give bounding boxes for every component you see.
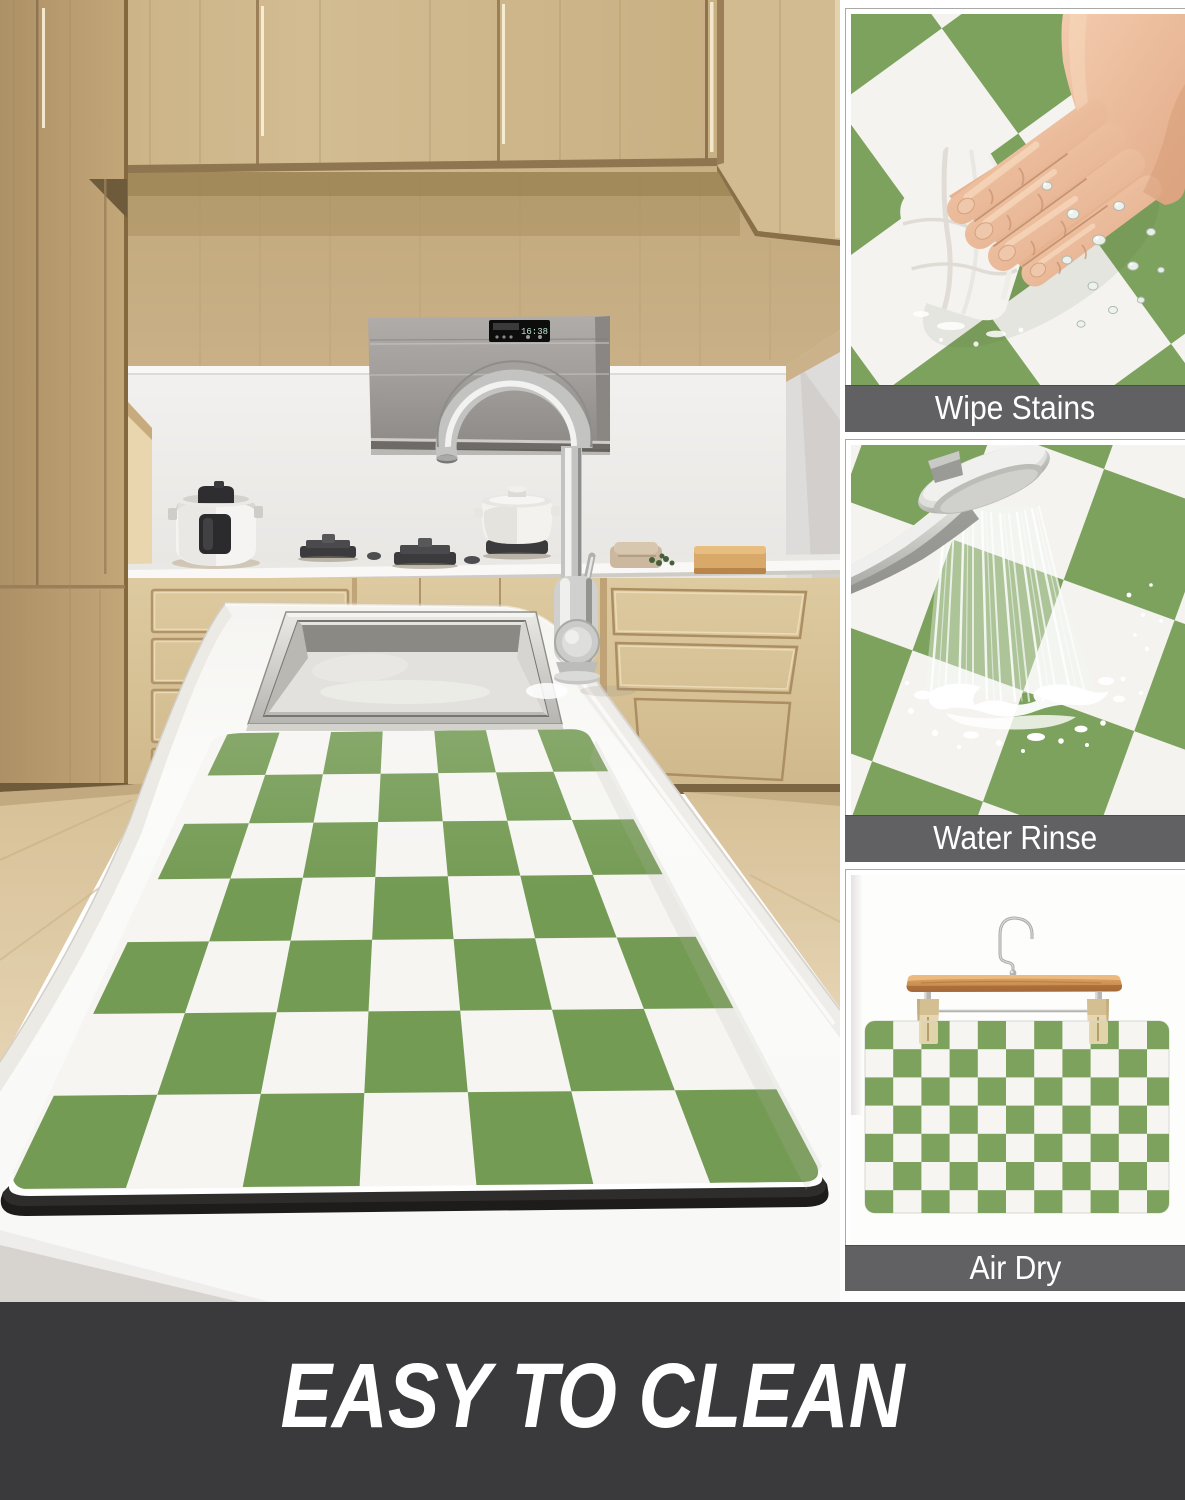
svg-text:16:38: 16:38: [521, 327, 548, 337]
